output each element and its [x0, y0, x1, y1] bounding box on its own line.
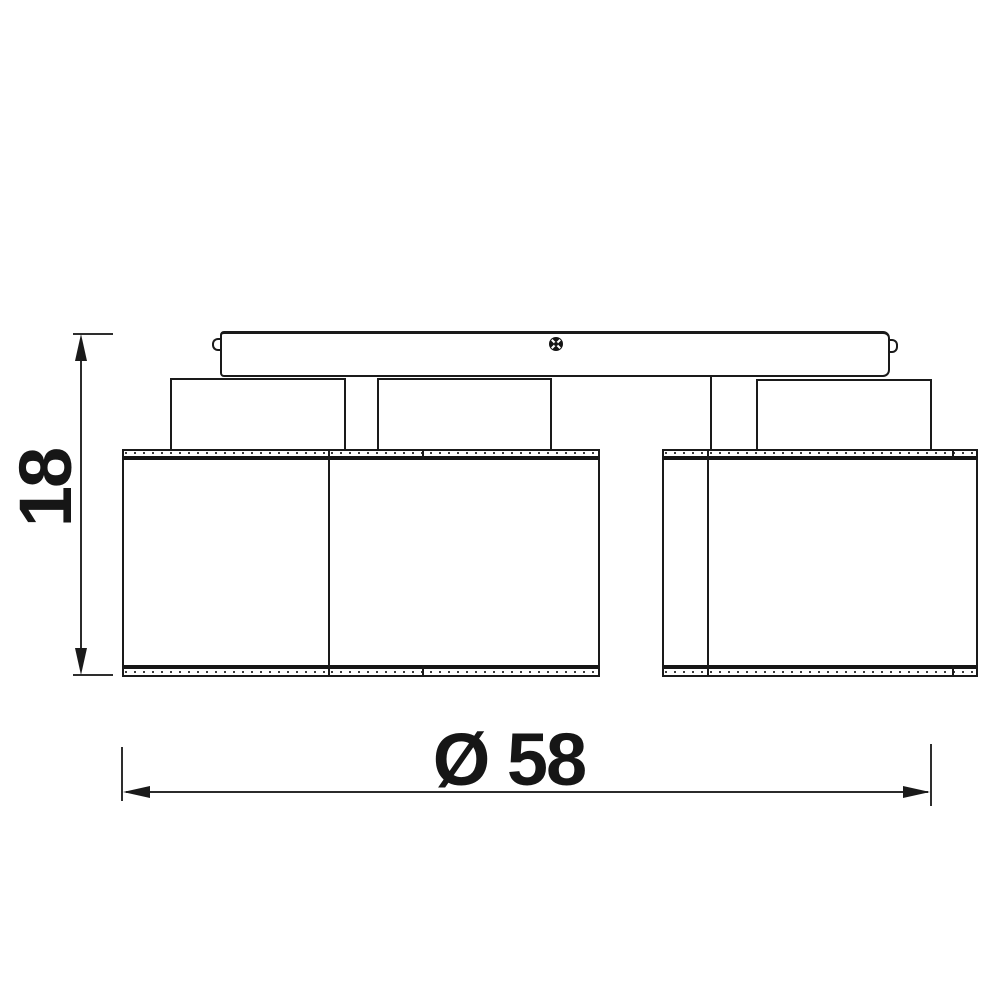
band-texture [665, 671, 975, 673]
screw-center-dot [554, 342, 558, 346]
rear-shade-right [756, 379, 932, 449]
band-texture [331, 452, 597, 454]
height-dim-arrow-down-icon [75, 648, 87, 675]
band-seam [952, 665, 954, 677]
lamp-stem-edge [710, 377, 712, 449]
rear-shade-left [170, 378, 346, 449]
front-shade-center [330, 449, 600, 677]
width-dim-arrow-left-icon [123, 786, 150, 798]
width-dim-arrow-right-icon [903, 786, 930, 798]
shade-wrap-seam [707, 449, 709, 677]
shade-top-band [664, 449, 976, 460]
shade-bottom-band [124, 665, 328, 677]
screw-icon [549, 337, 563, 351]
band-texture [125, 452, 327, 454]
shade-bottom-band [330, 665, 598, 677]
band-seam [422, 665, 424, 677]
band-seam [422, 449, 424, 460]
front-shade-left [122, 449, 330, 677]
rear-shade-center [377, 378, 552, 449]
band-texture [665, 452, 975, 454]
height-dim-label: 18 [14, 406, 78, 570]
band-seam [952, 449, 954, 460]
shade-bottom-band [664, 665, 976, 677]
band-texture [331, 671, 597, 673]
shade-top-band [124, 449, 328, 460]
width-dim-extension-right [930, 744, 932, 806]
shade-top-band [330, 449, 598, 460]
height-dim-arrow-up-icon [75, 334, 87, 361]
band-texture [125, 671, 327, 673]
width-dim-label: Ø 58 [379, 728, 639, 792]
technical-drawing-canvas: 18 Ø 58 [0, 0, 1000, 1000]
front-shade-right [662, 449, 978, 677]
